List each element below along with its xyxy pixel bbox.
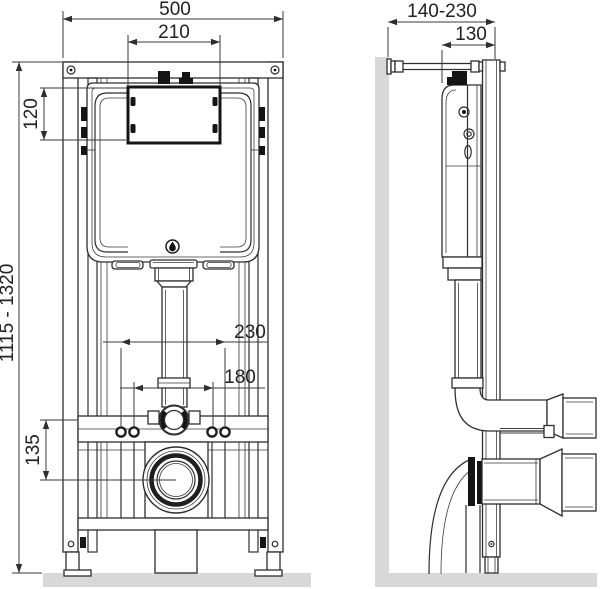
dim-label-depth: 130 (455, 24, 487, 45)
side-view: 140-230 130 (375, 1, 597, 587)
inlet-connector-icon (452, 71, 467, 85)
wall-side (375, 57, 389, 573)
dim-label-opening-width: 210 (158, 22, 190, 43)
dim-label-flush-drain-offset: 135 (23, 434, 44, 466)
cistern-side (442, 71, 482, 280)
dim-label-wall-offset: 140-230 (407, 1, 477, 22)
dim-label-overall-width: 500 (159, 0, 191, 20)
dim-label-bolt-outer: 230 (234, 322, 266, 343)
dim-label-opening-height: 120 (21, 98, 42, 130)
inlet-connector-icon (158, 71, 170, 84)
cistern-front (81, 71, 265, 269)
dim-frame-height: 1115 - 1320 (0, 62, 62, 573)
service-opening (128, 87, 220, 143)
wall-anchor-rod (387, 59, 483, 74)
dim-label-bolt-inner: 180 (224, 367, 256, 388)
drain-bend-side (429, 449, 596, 574)
floor-side (375, 573, 597, 587)
water-drop-icon (166, 240, 179, 253)
technical-drawing-page: 500 210 120 1115 - 1320 (0, 0, 600, 589)
installation-frame-drawing: 500 210 120 1115 - 1320 (0, 0, 600, 589)
front-view: 500 210 120 1115 - 1320 (0, 0, 311, 587)
flush-pipe-side (452, 280, 596, 438)
dim-label-frame-height: 1115 - 1320 (0, 264, 18, 363)
flush-pipe-front (150, 260, 197, 407)
